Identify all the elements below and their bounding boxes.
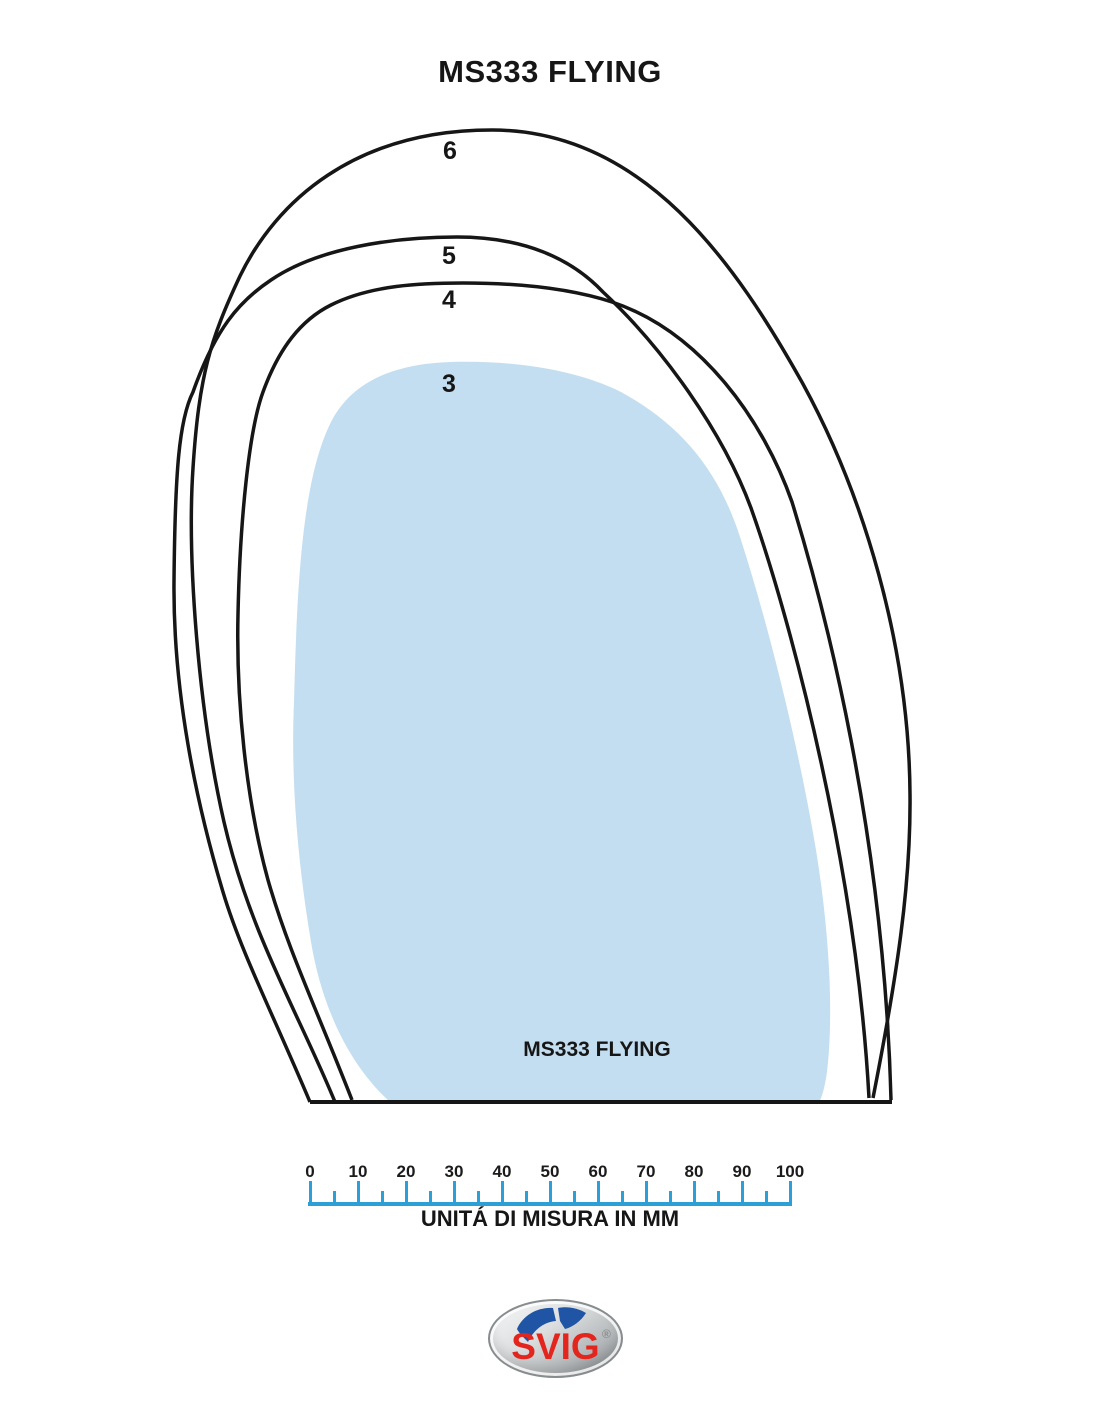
ruler-minor-tick <box>573 1191 576 1202</box>
ruler-tick-label: 10 <box>338 1162 378 1182</box>
ruler-major-tick <box>309 1181 312 1202</box>
ruler-major-tick <box>741 1181 744 1202</box>
shape-model-label: MS333 FLYING <box>487 1038 707 1062</box>
ruler-unit-label: UNITÁ DI MISURA IN MM <box>390 1206 710 1232</box>
ruler-tick-label: 60 <box>578 1162 618 1182</box>
svig-logo: SVIG ® <box>488 1299 623 1378</box>
ruler-minor-tick <box>669 1191 672 1202</box>
ruler-tick-label: 100 <box>770 1162 810 1182</box>
ruler-tick-label: 50 <box>530 1162 570 1182</box>
ruler-tick-label: 20 <box>386 1162 426 1182</box>
ruler-minor-tick <box>765 1191 768 1202</box>
ruler-bar <box>308 1180 792 1206</box>
ruler-major-tick <box>501 1181 504 1202</box>
ruler-tick-label: 70 <box>626 1162 666 1182</box>
ruler-major-tick <box>405 1181 408 1202</box>
ruler-minor-tick <box>333 1191 336 1202</box>
size-label-3: 3 <box>432 370 466 398</box>
size-label-4: 4 <box>432 286 466 314</box>
registered-trademark-icon: ® <box>602 1327 611 1341</box>
logo-ellipse: SVIG ® <box>488 1299 623 1378</box>
ruler-tick-label: 40 <box>482 1162 522 1182</box>
ruler-minor-tick <box>477 1191 480 1202</box>
ruler-minor-tick <box>717 1191 720 1202</box>
ruler-major-tick <box>453 1181 456 1202</box>
ruler-tick-label: 80 <box>674 1162 714 1182</box>
ruler-minor-tick <box>621 1191 624 1202</box>
ruler-tick-label: 30 <box>434 1162 474 1182</box>
ruler-major-tick <box>645 1181 648 1202</box>
size-3-filled-shape <box>293 362 830 1102</box>
page: MS333 FLYING 6 5 4 3 MS333 FLYING 010203… <box>0 0 1100 1422</box>
ruler-minor-tick <box>429 1191 432 1202</box>
size-label-5: 5 <box>432 242 466 270</box>
size-label-6: 6 <box>433 137 467 165</box>
ruler-minor-tick <box>381 1191 384 1202</box>
ruler-major-tick <box>357 1181 360 1202</box>
ruler-major-tick <box>549 1181 552 1202</box>
ruler-tick-label: 90 <box>722 1162 762 1182</box>
ruler-major-tick <box>597 1181 600 1202</box>
ruler-tick-label: 0 <box>290 1162 330 1182</box>
ruler: 0102030405060708090100 <box>308 1162 792 1206</box>
ruler-major-tick <box>693 1181 696 1202</box>
ruler-labels: 0102030405060708090100 <box>308 1162 792 1180</box>
ruler-minor-tick <box>525 1191 528 1202</box>
ruler-major-tick <box>789 1181 792 1202</box>
